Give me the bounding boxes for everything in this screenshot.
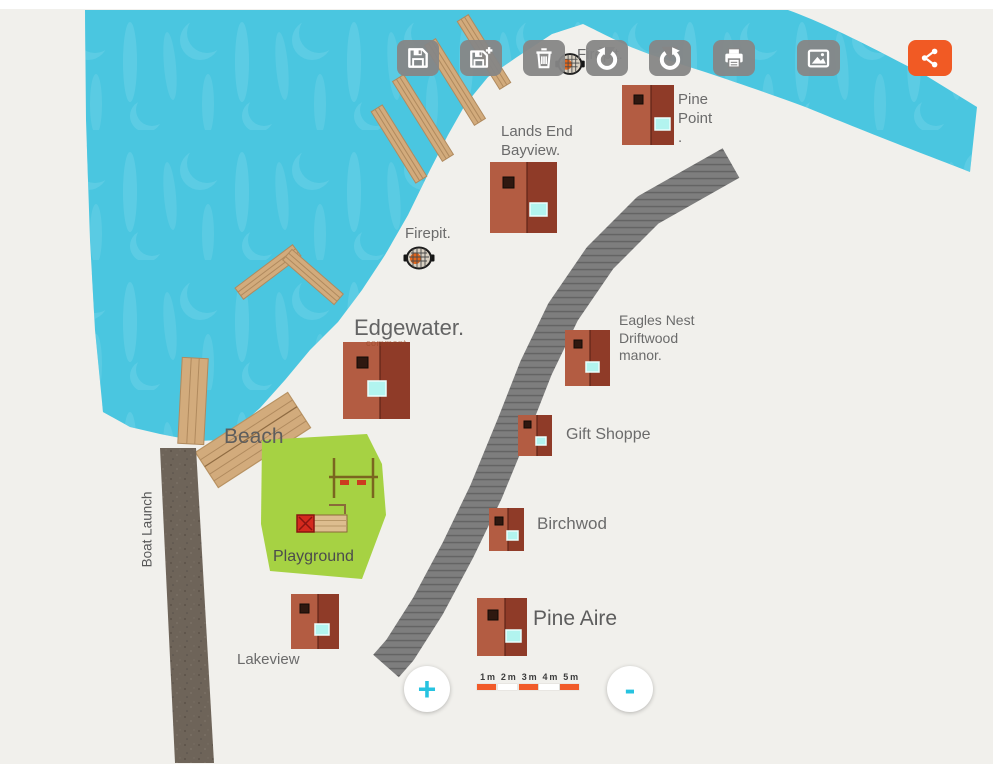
scale-bar: 1 m 2 m 3 m 4 m 5 m <box>477 672 581 690</box>
scale-segment <box>498 684 517 690</box>
birchwod-label[interactable]: Birchwod <box>537 513 607 534</box>
image-icon <box>805 45 832 72</box>
playground-label[interactable]: Playground <box>273 547 354 567</box>
zoom-in-button[interactable]: + <box>404 666 450 712</box>
scale-segment <box>477 684 496 690</box>
gift-shoppe-label[interactable]: Gift Shoppe <box>566 425 651 445</box>
lands-end-label[interactable]: Lands End Bayview. <box>501 123 573 161</box>
save-button[interactable] <box>397 40 439 76</box>
scale-label-5m: 5 m <box>560 672 581 682</box>
dock-beach-pier[interactable] <box>178 357 208 444</box>
map-canvas[interactable] <box>0 0 993 771</box>
share-icon <box>918 46 942 70</box>
firepit-label[interactable]: Firepit. <box>405 225 451 244</box>
redo-button[interactable] <box>649 40 691 76</box>
share-button[interactable] <box>908 40 952 76</box>
scale-segment <box>519 684 538 690</box>
page-edge-top <box>0 0 993 9</box>
save-as-button[interactable] <box>460 40 502 76</box>
scale-segments <box>477 684 581 690</box>
floppy-disk-icon <box>405 45 431 71</box>
delete-button[interactable] <box>523 40 565 76</box>
page-edge-bottom <box>0 764 993 771</box>
scale-segment <box>560 684 579 690</box>
scale-label-2m: 2 m <box>498 672 519 682</box>
scale-label-1m: 1 m <box>477 672 498 682</box>
scale-label-3m: 3 m <box>519 672 540 682</box>
printer-icon <box>721 45 747 71</box>
map-editor-app: Firepit. Pine Point . Lands End Bayview.… <box>0 0 993 771</box>
boat-launch-label[interactable]: Boat Launch <box>140 484 157 574</box>
scale-label-4m: 4 m <box>539 672 560 682</box>
pine-point-label[interactable]: Pine Point . <box>678 91 712 147</box>
redo-rotate-right-icon <box>656 44 684 72</box>
building-lakeview[interactable] <box>291 594 339 649</box>
beach-label[interactable]: Beach <box>224 424 284 450</box>
lakeview-label[interactable]: Lakeview <box>237 651 300 670</box>
undo-button[interactable] <box>586 40 628 76</box>
building-lands-end[interactable] <box>490 162 557 233</box>
building-pine-point[interactable] <box>622 85 674 145</box>
export-image-button[interactable] <box>797 40 840 76</box>
eagles-nest-label[interactable]: Eagles Nest Driftwood manor. <box>619 312 694 365</box>
building-edgewater[interactable] <box>343 342 410 419</box>
building-gift-shoppe[interactable] <box>518 415 552 456</box>
undo-rotate-left-icon <box>593 44 621 72</box>
pine-aire-label[interactable]: Pine Aire <box>533 606 617 632</box>
scale-labels: 1 m 2 m 3 m 4 m 5 m <box>477 672 581 682</box>
floppy-disk-plus-icon <box>468 45 494 71</box>
comment-watermark: comment <box>366 338 407 349</box>
scale-segment <box>539 684 558 690</box>
building-pine-aire[interactable] <box>477 598 527 656</box>
building-eagles-nest[interactable] <box>565 330 610 386</box>
trash-icon <box>531 45 557 71</box>
print-button[interactable] <box>713 40 755 76</box>
building-birchwod[interactable] <box>489 508 524 551</box>
zoom-out-button[interactable]: - <box>607 666 653 712</box>
